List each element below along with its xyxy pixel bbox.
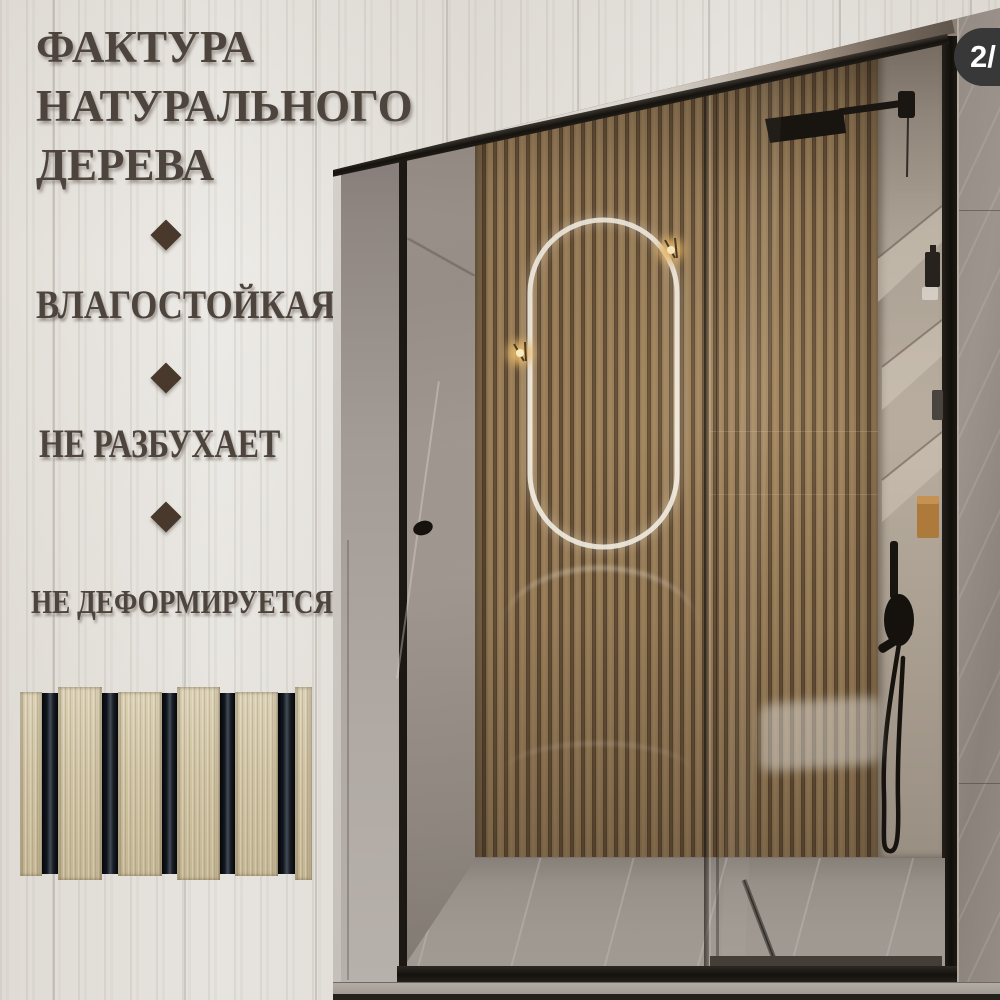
sconce-light [508,341,532,365]
panel-slat [295,687,312,880]
glass-door-edge [716,66,719,968]
floor-drain [744,880,776,964]
glass-reflection [503,566,698,690]
hand-shower [877,541,914,851]
feature-label-moisture-resistant: ВЛАГОСТОЙКАЯ [36,281,335,328]
image-counter-label: 2/ [970,39,996,75]
panel-slat [177,687,220,880]
panel-slat [58,687,102,880]
shower-room-photo [333,0,1000,1000]
feature-label-no-deformation: НЕ ДЕФОРМИРУЕТСЯ [31,584,333,622]
panel-slat [20,692,42,876]
led-mirror-outline [530,220,677,547]
sconce-light [659,238,683,262]
glass-reflection [760,696,880,772]
panel-groove [102,693,118,874]
glass-sheen [721,70,783,960]
panel-groove [278,693,295,874]
glass-door-edge-highlight [709,72,711,968]
shower-threshold [333,982,1000,994]
panel-groove [162,693,177,874]
panel-slat [235,692,278,876]
product-card: ФАКТУРА НАТУРАЛЬНОГО ДЕРЕВА ВЛАГОСТОЙКАЯ… [0,0,1000,1000]
door-handle [411,518,434,537]
feature-label-no-swelling: НЕ РАЗБУХАЕТ [39,420,280,467]
panel-groove [42,693,58,874]
title-line-2: НАТУРАЛЬНОГО [36,77,413,136]
panel-slat [118,692,162,876]
glass-reflection [503,742,693,805]
glass-frame-bottom [397,966,957,982]
title-line-1: ФАКТУРА [36,18,413,77]
panel-sample-image [20,687,312,880]
niche-shelves [878,206,943,538]
panel-groove [220,693,235,874]
photo-bottom-edge [333,994,1000,1000]
rain-shower-head [765,91,915,177]
